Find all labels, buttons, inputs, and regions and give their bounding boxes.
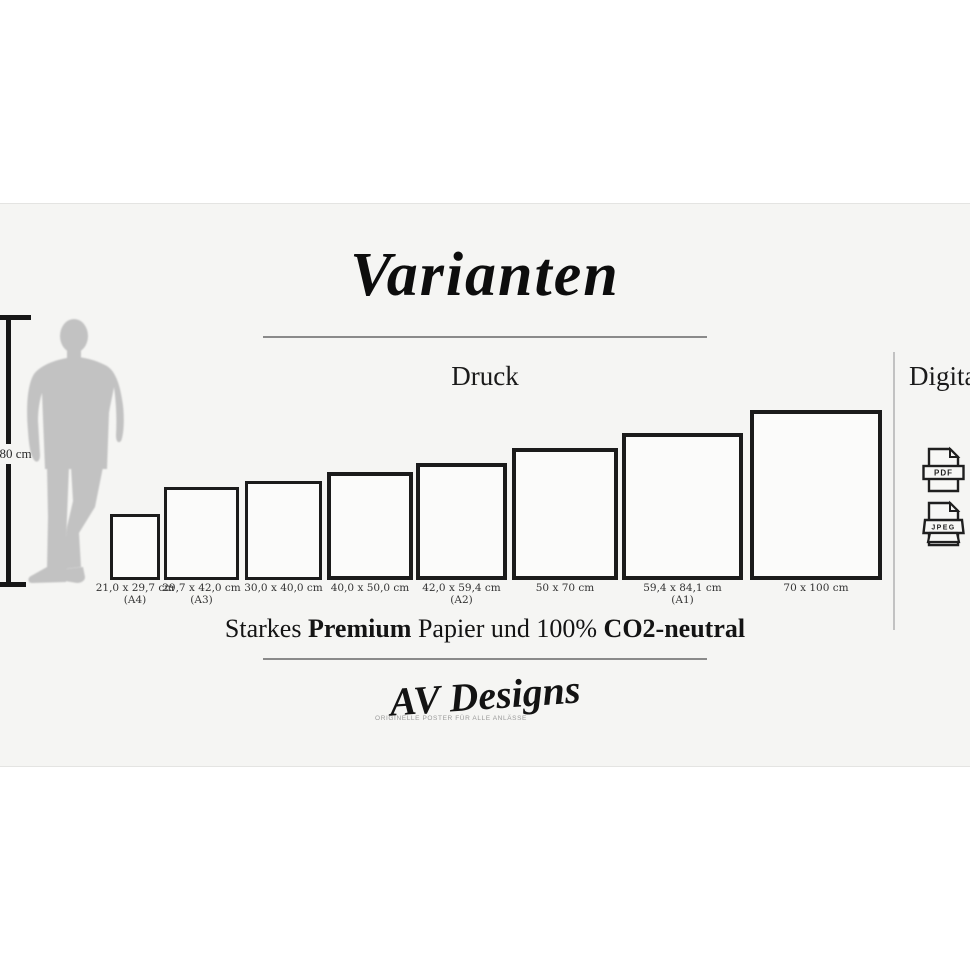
quality-statement: Starkes Premium Papier und 100% CO2-neut… [0,614,970,644]
size-format: (A3) [127,595,277,607]
size-frame [750,410,882,580]
quality-part4-bold: CO2-neutral [604,614,746,643]
poster-variants-infographic: Varianten Druck Digital 180 cm 21,0 x 29… [0,0,970,971]
page-title: Varianten [0,240,970,311]
size-frame [164,487,239,580]
size-label: 70 x 100 cm [741,583,891,595]
size-frame [416,463,507,580]
quality-part1: Starkes [225,614,308,643]
brand-tagline: ORIGINELLE POSTER FÜR ALLE ANLÄSSE [331,715,571,722]
size-frame [327,472,413,580]
size-frame [622,433,743,580]
size-label: 59,4 x 84,1 cm(A1) [608,583,758,606]
section-divider-line [893,352,895,630]
footer-divider-line [263,658,707,660]
print-section-label: Druck [0,361,970,392]
title-divider-line [263,336,707,338]
format-label: PDF [934,469,953,478]
size-frame [512,448,618,580]
quality-part2-bold: Premium [308,614,412,643]
size-dimensions: 59,4 x 84,1 cm [608,583,758,595]
format-label: JPEG [931,525,955,532]
jpeg-file-icon: JPEG [920,500,967,548]
quality-part3: Papier und 100% [411,614,603,643]
size-frame [245,481,322,580]
size-format: (A2) [387,595,537,607]
size-format: (A1) [608,595,758,607]
size-dimensions: 70 x 100 cm [741,583,891,595]
pdf-file-icon: PDF [920,446,967,494]
digital-section-label: Digital [909,361,970,392]
size-frame [110,514,160,580]
